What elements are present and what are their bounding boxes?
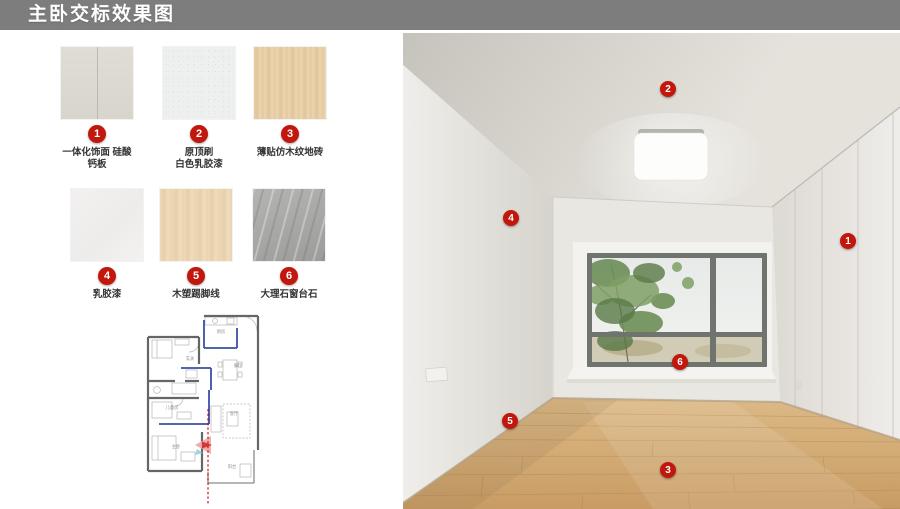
material-number-badge: 1	[88, 125, 106, 143]
room-render: 2 4 1 6 5 3	[403, 33, 900, 509]
callout-badge-floor-tile: 3	[660, 462, 676, 478]
page-title: 主卧交标效果图	[0, 0, 900, 30]
callout-badge-ceiling-paint: 2	[660, 81, 676, 97]
room-render-image	[403, 33, 900, 509]
material-swatch-paint	[71, 189, 143, 261]
material-number-badge: 2	[190, 125, 208, 143]
floor-plan: 厨房 玄关 餐厅 儿童房 客厅 主卧 阳台	[145, 312, 263, 508]
material-label: 薄贴仿木纹地砖	[257, 147, 324, 159]
material-item-3: 3 薄贴仿木纹地砖	[235, 47, 345, 159]
callout-badge-wall-paint: 4	[503, 210, 519, 226]
window-mullion	[710, 258, 716, 362]
material-swatch-stucco	[163, 47, 235, 119]
window-sill	[567, 367, 776, 379]
callout-badge-skirting: 5	[502, 413, 518, 429]
material-swatch-skirting	[160, 189, 232, 261]
material-number-badge: 5	[187, 267, 205, 285]
callout-badge-wall-panel: 1	[840, 233, 856, 249]
room-label-living: 客厅	[230, 410, 239, 417]
material-label: 一体化饰面 硅酸 钙板	[62, 147, 131, 172]
material-swatch-wood-tile	[254, 47, 326, 119]
material-item-1: 1 一体化饰面 硅酸 钙板	[42, 47, 152, 172]
material-label: 乳胶漆	[93, 289, 122, 301]
material-number-badge: 6	[280, 267, 298, 285]
material-swatch-panel	[61, 47, 133, 119]
callout-badge-window-sill: 6	[672, 354, 688, 370]
material-label: 原顶刷 白色乳胶漆	[175, 147, 223, 172]
room-label-kitchen: 厨房	[217, 328, 226, 335]
floor-plan-drawing: 厨房 玄关 餐厅 儿童房 客厅 主卧 阳台	[145, 312, 263, 508]
material-swatch-marble	[253, 189, 325, 261]
room-label-kids-room: 儿童房	[166, 404, 179, 411]
window-sill-edge	[567, 379, 776, 383]
material-label: 木塑踢脚线	[172, 289, 220, 301]
material-number-badge: 4	[98, 267, 116, 285]
ceiling-light	[634, 129, 708, 180]
window-transom	[592, 332, 762, 337]
material-item-6: 6 大理石窗台石	[234, 189, 344, 301]
room-label-balcony: 阳台	[228, 463, 237, 470]
light-switch	[426, 367, 448, 381]
material-number-badge: 3	[281, 125, 299, 143]
design-spec-sheet: 主卧交标效果图 1 一体化饰面 硅酸 钙板 2 原顶刷 白色乳胶漆 3 薄贴仿木…	[0, 0, 900, 509]
title-bar: 主卧交标效果图	[0, 0, 900, 30]
room-label-dining: 餐厅	[234, 362, 243, 369]
room-label-foyer: 玄关	[186, 355, 195, 362]
material-label: 大理石窗台石	[260, 289, 317, 301]
room-label-master: 主卧	[172, 443, 181, 450]
wall-socket	[796, 381, 802, 390]
